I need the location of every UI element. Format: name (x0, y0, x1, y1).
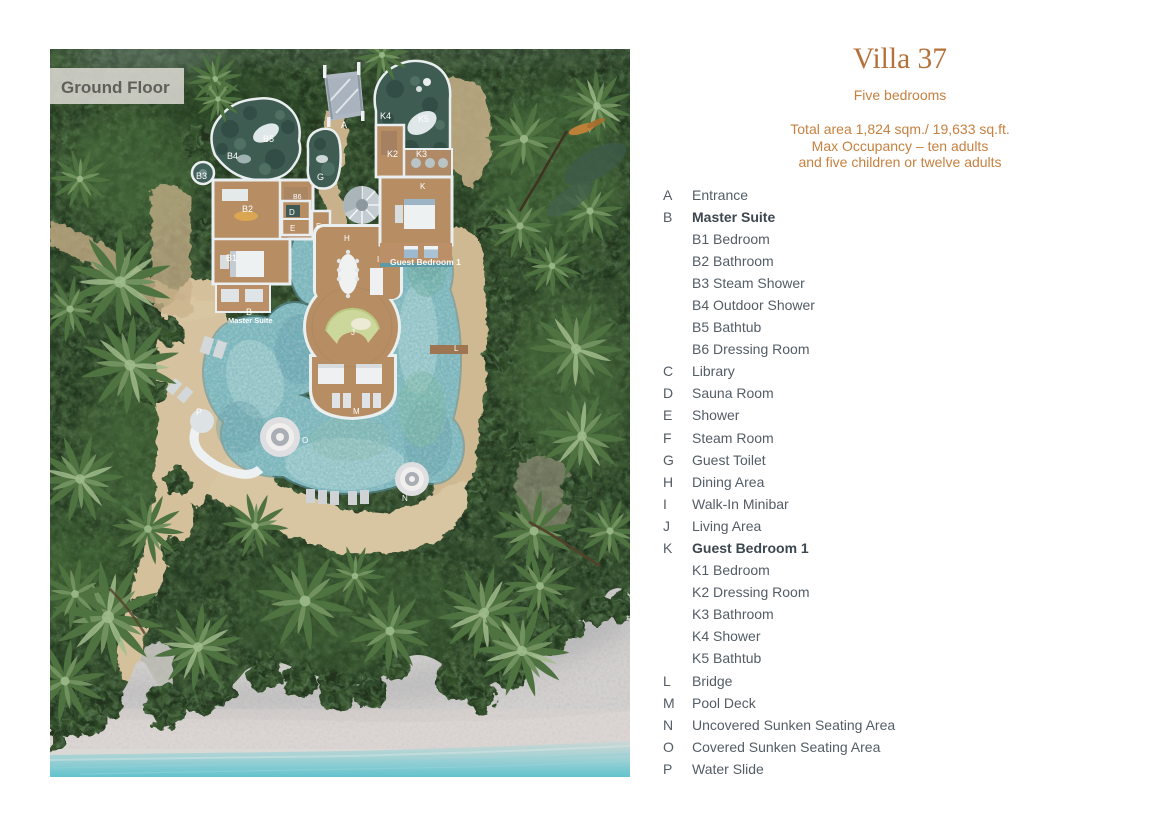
svg-text:B1: B1 (226, 253, 237, 263)
svg-text:P: P (196, 407, 202, 417)
svg-text:B2: B2 (242, 204, 253, 214)
svg-text:G: G (317, 172, 324, 182)
svg-text:B4: B4 (227, 151, 238, 161)
svg-text:B5: B5 (263, 134, 274, 144)
svg-text:N: N (402, 494, 408, 503)
svg-text:B6: B6 (293, 194, 302, 201)
svg-text:Master Suite: Master Suite (228, 316, 273, 325)
svg-text:J: J (351, 328, 355, 337)
svg-text:Ground Floor: Ground Floor (61, 78, 170, 97)
svg-text:O: O (302, 436, 308, 445)
svg-text:K2: K2 (387, 149, 398, 159)
svg-text:L: L (454, 344, 459, 353)
svg-text:K: K (420, 182, 426, 191)
svg-text:K3: K3 (416, 149, 427, 159)
svg-text:B3: B3 (196, 171, 207, 181)
svg-text:H: H (344, 234, 350, 243)
svg-text:I: I (377, 255, 379, 264)
svg-text:F: F (316, 222, 321, 231)
svg-text:K4: K4 (380, 111, 391, 121)
svg-text:D: D (289, 208, 295, 217)
svg-text:K5: K5 (418, 114, 429, 124)
svg-text:Guest Bedroom 1: Guest Bedroom 1 (390, 257, 461, 267)
svg-text:E: E (290, 224, 295, 233)
svg-text:A: A (341, 120, 347, 130)
svg-text:M: M (353, 407, 360, 416)
